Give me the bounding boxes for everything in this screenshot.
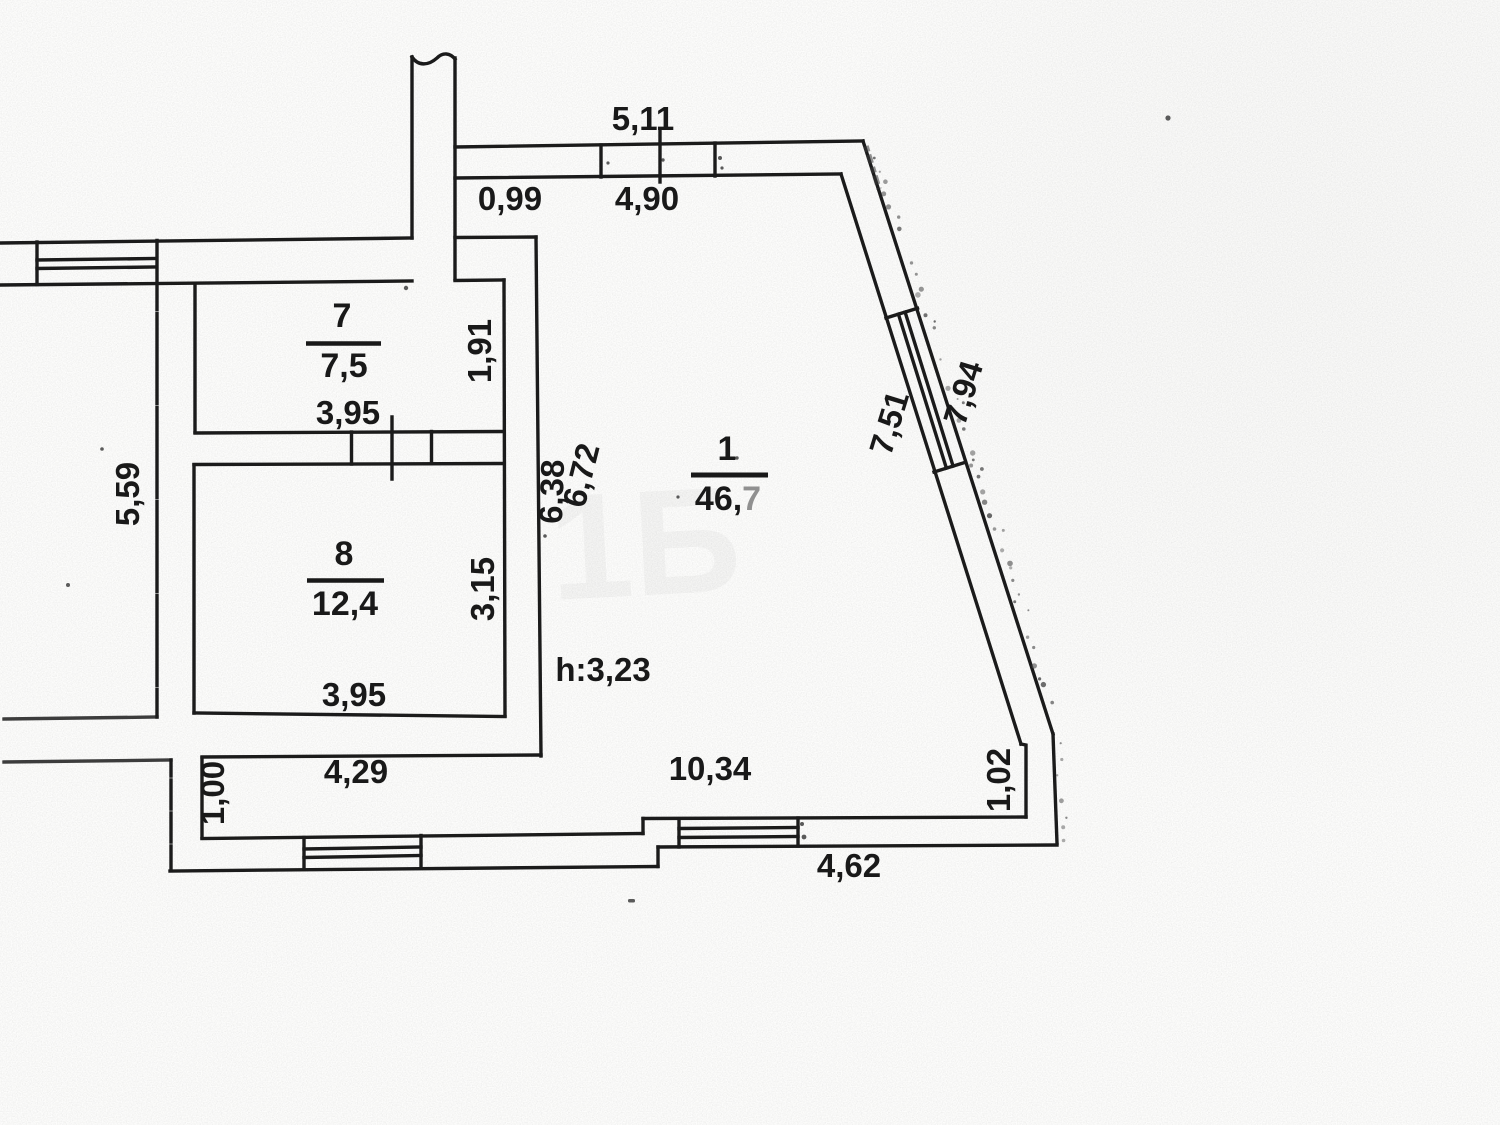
svg-text:1,02: 1,02 (980, 748, 1017, 812)
svg-text:5,59: 5,59 (109, 462, 146, 526)
svg-text:12,4: 12,4 (312, 585, 378, 623)
svg-text:h:3,23: h:3,23 (555, 651, 650, 688)
svg-text:1,00: 1,00 (194, 761, 231, 825)
svg-text:3,15: 3,15 (464, 557, 501, 621)
svg-text:5,11: 5,11 (612, 100, 674, 137)
svg-text:3,95: 3,95 (322, 676, 386, 713)
svg-text:1,91: 1,91 (461, 319, 498, 383)
svg-text:4,62: 4,62 (817, 847, 881, 884)
svg-text:7,5: 7,5 (320, 347, 367, 385)
svg-text:7: 7 (333, 297, 352, 335)
svg-text:4,90: 4,90 (615, 180, 679, 217)
svg-text:8: 8 (335, 535, 354, 573)
svg-text:10,34: 10,34 (669, 750, 752, 787)
svg-text:3,95: 3,95 (316, 394, 380, 431)
svg-text:4,29: 4,29 (324, 753, 388, 790)
svg-text:0,99: 0,99 (478, 180, 542, 217)
svg-text:46,7: 46,7 (695, 480, 761, 518)
svg-text:1: 1 (718, 430, 737, 468)
